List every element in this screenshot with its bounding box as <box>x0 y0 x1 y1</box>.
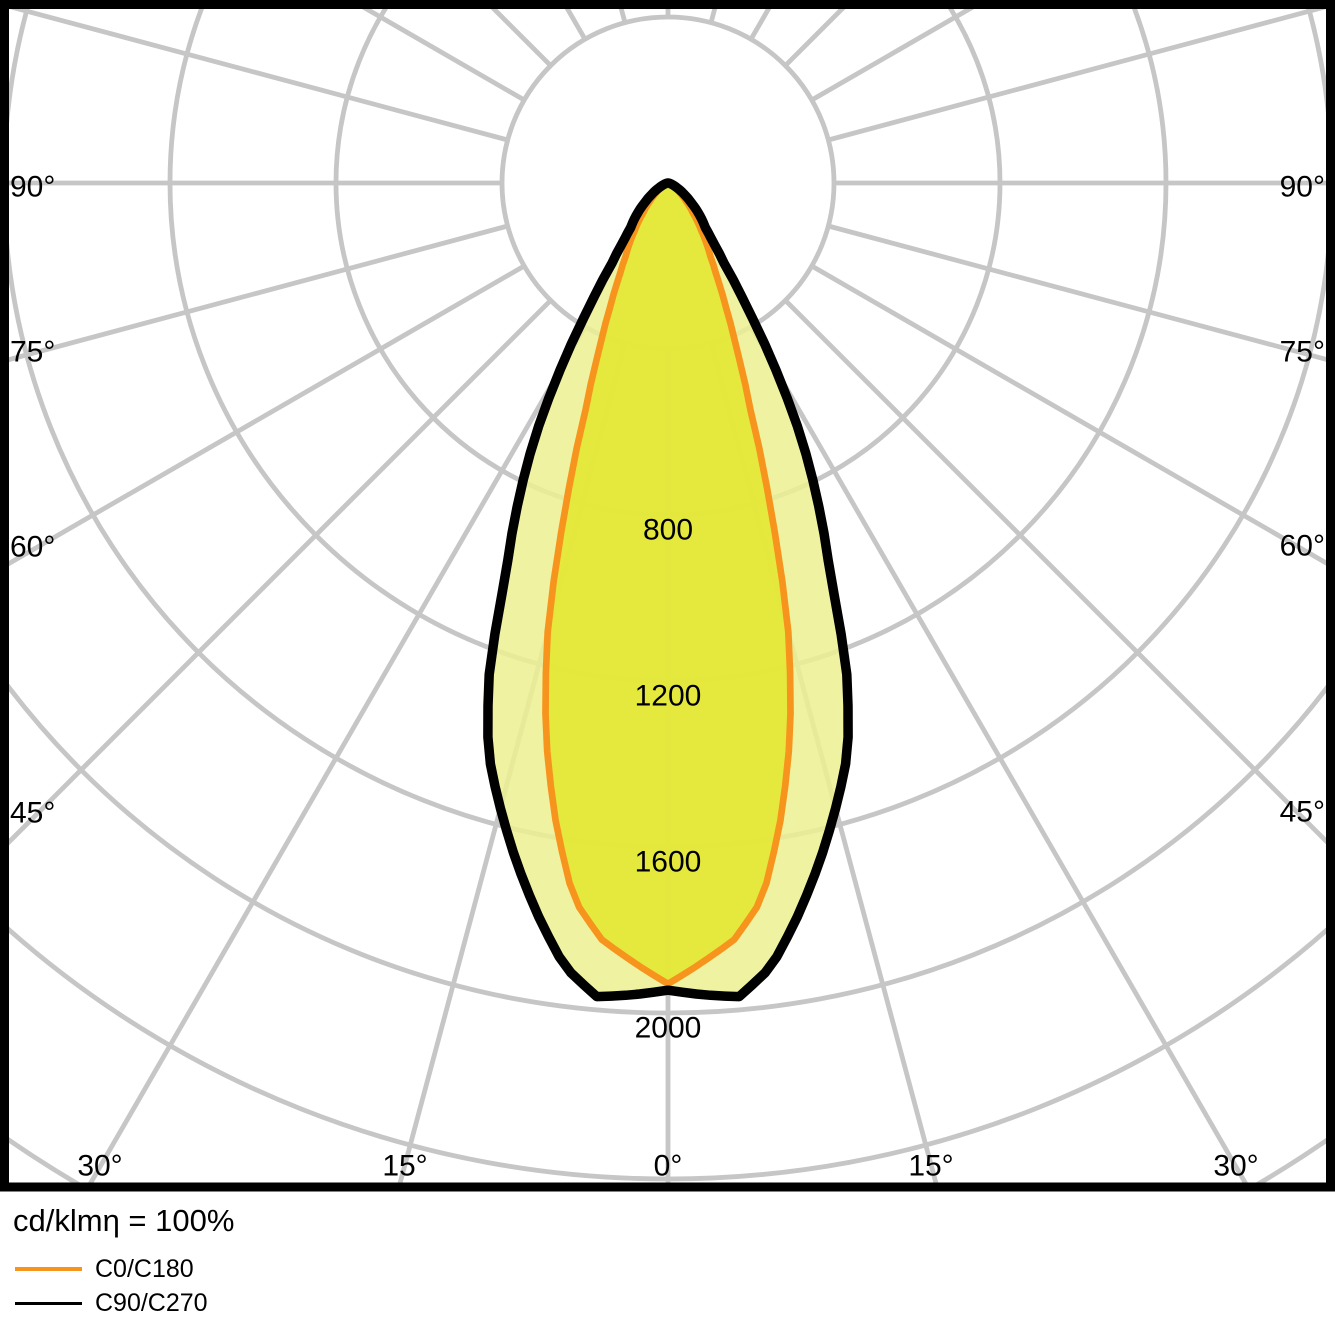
radial-tick-label: 800 <box>643 514 693 547</box>
photometric-diagram-page: 80012001600200090°90°75°75°60°60°45°45°3… <box>0 0 1335 1335</box>
angle-tick-label-left: 45° <box>10 797 55 830</box>
polar-chart-svg: 80012001600200090°90°75°75°60°60°45°45°3… <box>0 0 1335 1196</box>
angle-tick-label-left: 75° <box>10 336 55 369</box>
c90-c270-line-swatch <box>15 1302 82 1305</box>
angle-tick-label-left: 60° <box>10 531 55 564</box>
radial-tick-label: 1200 <box>635 680 702 713</box>
angle-tick-label-left: 90° <box>10 171 55 204</box>
angle-tick-label-right: 90° <box>1280 171 1325 204</box>
angle-tick-label-right: 45° <box>1280 796 1325 829</box>
legend-item-label-c90-c270: C90/C270 <box>95 1289 208 1318</box>
legend-item-c0-c180: C0/C180 <box>13 1252 194 1286</box>
legend-item-c90-c270: C90/C270 <box>13 1286 208 1320</box>
angle-tick-label-bottom: 0° <box>654 1150 683 1183</box>
radial-tick-label: 1600 <box>635 846 702 879</box>
legend-item-label-c0-c180: C0/C180 <box>95 1255 194 1284</box>
angle-tick-label-right: 75° <box>1280 336 1325 369</box>
angle-tick-label-bottom: 15° <box>382 1150 427 1183</box>
angle-tick-label-bottom: 15° <box>908 1150 953 1183</box>
radial-tick-label: 2000 <box>635 1012 702 1045</box>
angle-tick-label-bottom: 30° <box>1213 1150 1258 1183</box>
angle-tick-label-right: 60° <box>1280 530 1325 563</box>
legend: cd/klmη = 100% C0/C180 C90/C270 <box>0 1196 1335 1335</box>
c0-c180-line-swatch <box>15 1267 82 1271</box>
polar-chart-area: 80012001600200090°90°75°75°60°60°45°45°3… <box>0 0 1335 1196</box>
legend-title: cd/klmη = 100% <box>13 1204 234 1238</box>
angle-tick-label-bottom: 30° <box>77 1150 122 1183</box>
